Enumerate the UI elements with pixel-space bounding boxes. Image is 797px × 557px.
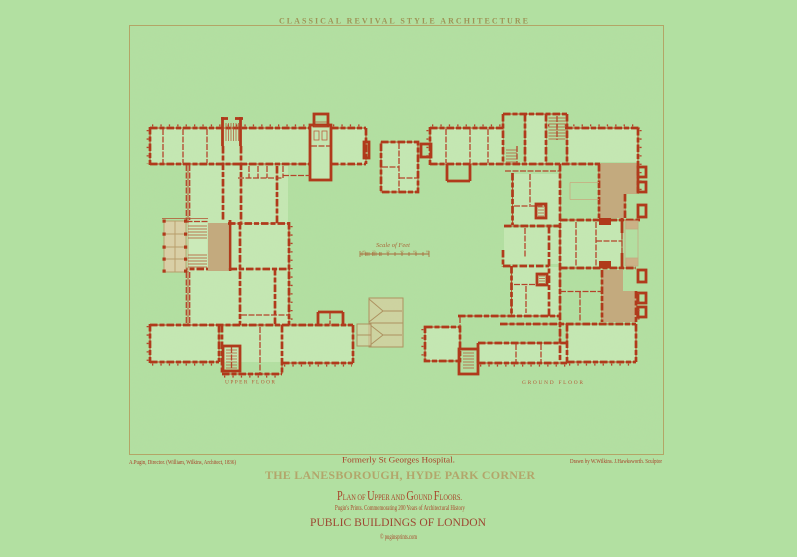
svg-text:40: 40 xyxy=(400,250,404,254)
svg-text:PUBLIC BUILDINGS OF LONDON: PUBLIC BUILDINGS OF LONDON xyxy=(310,515,486,529)
svg-text:Pugin's Prints. Commemorating: Pugin's Prints. Commemorating 200 Years … xyxy=(335,503,465,512)
svg-text:40: 40 xyxy=(362,250,366,254)
svg-text:Formerly St Georges Hospital.: Formerly St Georges Hospital. xyxy=(342,456,455,465)
svg-text:© puginsprints.com: © puginsprints.com xyxy=(380,532,417,541)
svg-text:Scale of Feet: Scale of Feet xyxy=(376,242,410,249)
svg-text:THE LANESBOROUGH, HYDE PARK CO: THE LANESBOROUGH, HYDE PARK CORNER xyxy=(265,468,535,482)
svg-text:CLASSICAL REVIVAL STYLE ARCHIT: CLASSICAL REVIVAL STYLE ARCHITECTURE xyxy=(279,17,528,26)
svg-text:20: 20 xyxy=(386,250,390,254)
svg-text:60: 60 xyxy=(413,250,417,254)
svg-text:Drawn by W.Wilkins. J.Hawkswor: Drawn by W.Wilkins. J.Hawksworth. Sculpt… xyxy=(570,458,662,465)
svg-text:A.Pugin, Director. (William, W: A.Pugin, Director. (William, Wilkins, Ar… xyxy=(129,459,236,466)
svg-text:PLAN OF UPPER AND GOUND FLOORS: PLAN OF UPPER AND GOUND FLOORS. xyxy=(337,488,462,503)
svg-text:GROUND FLOOR: GROUND FLOOR xyxy=(522,380,583,386)
svg-text:80: 80 xyxy=(426,250,430,254)
svg-text:UPPER FLOOR: UPPER FLOOR xyxy=(225,380,275,386)
